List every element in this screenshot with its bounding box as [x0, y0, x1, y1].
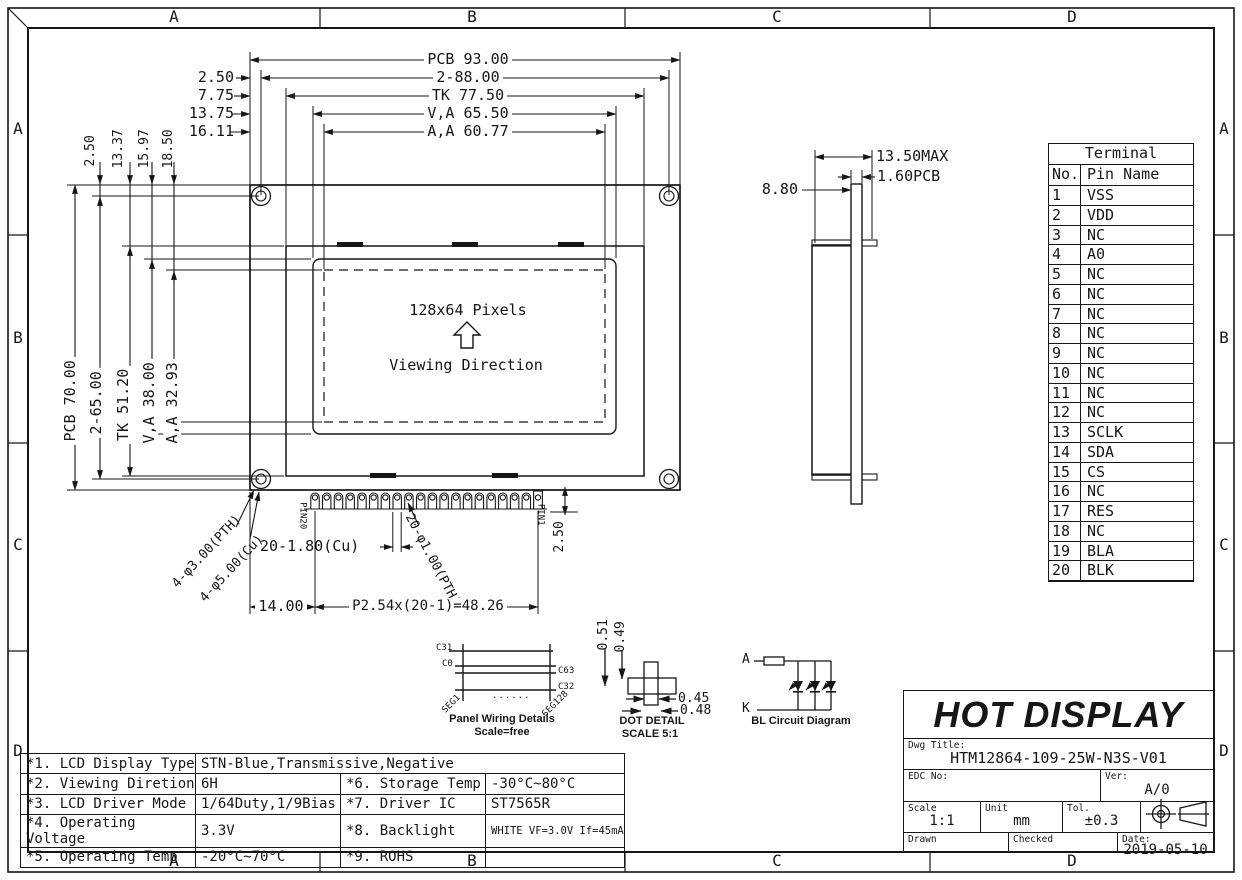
unit-value: mm	[981, 813, 1062, 829]
terminal-pin-number: 17	[1049, 502, 1081, 521]
bl-cathode-label: K	[742, 702, 750, 716]
dim-pcb-thickness: 1.60PCB	[877, 169, 940, 185]
spec-row-4: *4. Operating Voltage 3.3V *8. Backlight…	[21, 815, 624, 848]
zone-left-b: B	[8, 330, 28, 347]
dim-pin-pitch: P2.54x(20-1)=48.26	[330, 599, 526, 614]
drawn-cell: Drawn	[904, 833, 1009, 851]
spec-label: *3. LCD Driver Mode	[21, 795, 196, 814]
company-banner: HOT DISPLAY	[904, 691, 1213, 739]
terminal-pin-number: 19	[1049, 542, 1081, 561]
dim-pcb-width: PCB 93.00	[398, 52, 538, 68]
terminal-pin-number: 16	[1049, 482, 1081, 501]
dim-pin-offset: 14.00	[246, 599, 316, 615]
dim-depth: 8.80	[752, 182, 798, 198]
zone-left-a: A	[8, 121, 28, 138]
zone-top-b: B	[452, 9, 492, 26]
spec-value: 1/64Duty,1/9Bias	[196, 795, 341, 814]
spec-value: STN-Blue,Transmissive,Negative	[196, 754, 624, 773]
terminal-pin-number: 4	[1049, 245, 1081, 264]
terminal-pin-number: 20	[1049, 561, 1081, 580]
viewing-direction-arrow-icon	[454, 322, 480, 348]
terminal-pin-name: NC	[1081, 482, 1193, 501]
terminal-col-no: No.	[1049, 165, 1081, 185]
dot-detail-dim-049: 0.49	[614, 597, 628, 677]
terminal-row: 7 NC	[1049, 305, 1193, 325]
terminal-pin-name: VSS	[1081, 186, 1193, 205]
terminal-row: 19 BLA	[1049, 542, 1193, 562]
terminal-table-title: Terminal	[1049, 144, 1193, 165]
terminal-pin-number: 1	[1049, 186, 1081, 205]
terminal-pin-number: 11	[1049, 384, 1081, 403]
pin1-label: PIN1	[535, 500, 544, 530]
terminal-pin-number: 7	[1049, 305, 1081, 324]
edc-ver-row: EDC No: Ver: A/0	[904, 770, 1213, 802]
terminal-pin-number: 13	[1049, 423, 1081, 442]
panel-wiring-c0-label: C0	[442, 660, 453, 669]
spec-row-5: *5. Operating Temp -20°C~70°C *9. ROHS	[21, 848, 624, 867]
terminal-row: 3 NC	[1049, 226, 1193, 246]
terminal-pin-name: RES	[1081, 502, 1193, 521]
screen-resolution-label: 128x64 Pixels	[388, 303, 548, 319]
zone-top-a: A	[154, 9, 194, 26]
scale-value: 1:1	[904, 813, 980, 829]
terminal-pin-name: NC	[1081, 403, 1193, 422]
terminal-pin-name: NC	[1081, 364, 1193, 383]
pin20-label: PIN20	[297, 498, 306, 534]
scale-cell: Scale 1:1	[904, 802, 981, 832]
dim-vert-offset-4: 18.50	[162, 109, 176, 189]
spec-row-2: *2. Viewing Diretion 6H *6. Storage Temp…	[21, 774, 624, 794]
terminal-pin-number: 18	[1049, 522, 1081, 541]
terminal-row: 10 NC	[1049, 364, 1193, 384]
dimension-lines	[75, 60, 875, 607]
version-value: A/0	[1101, 782, 1213, 798]
spec-label: *6. Storage Temp	[341, 774, 486, 793]
spec-label: *1. LCD Display Type	[21, 754, 196, 773]
terminal-row: 4 A0	[1049, 245, 1193, 265]
dim-tk-width: TK 77.50	[398, 88, 538, 104]
terminal-pin-name: NC	[1081, 226, 1193, 245]
terminal-row: 1 VSS	[1049, 186, 1193, 206]
dim-hole-span-v: 2-65.00	[89, 343, 105, 463]
dot-detail-dim-051: 0.51	[597, 595, 611, 675]
version-cell: Ver: A/0	[1101, 770, 1213, 801]
zone-right-b: B	[1214, 330, 1234, 347]
dot-detail-caption: DOT DETAIL	[602, 716, 702, 728]
terminal-pin-name: SDA	[1081, 443, 1193, 462]
zone-top-c: C	[757, 9, 797, 26]
terminal-pin-name: NC	[1081, 265, 1193, 284]
dim-tk-height: TK 51.20	[116, 345, 132, 465]
panel-wiring-c31-label: C31	[436, 644, 452, 653]
panel-wiring-dots: ......	[492, 692, 531, 701]
terminal-pin-number: 3	[1049, 226, 1081, 245]
terminal-row: 17 RES	[1049, 502, 1193, 522]
dwg-title-value: HTM12864-109-25W-N3S-V01	[904, 749, 1213, 767]
spec-label: *7. Driver IC	[341, 795, 486, 814]
unit-cell: Unit mm	[981, 802, 1063, 832]
bl-anode-label: A	[742, 653, 750, 667]
spec-label: *2. Viewing Diretion	[21, 774, 196, 793]
terminal-pin-name: NC	[1081, 344, 1193, 363]
terminal-row: 12 NC	[1049, 403, 1193, 423]
terminal-pin-name: NC	[1081, 305, 1193, 324]
terminal-row: 20 BLK	[1049, 561, 1193, 581]
dim-vert-offset-3: 15.97	[138, 109, 152, 189]
terminal-pin-number: 14	[1049, 443, 1081, 462]
dim-pad-drop: 2.50	[553, 497, 567, 577]
spec-value: -30°C~80°C	[486, 774, 624, 793]
zone-bottom-d: D	[1052, 853, 1092, 870]
terminal-pin-name: VDD	[1081, 206, 1193, 225]
spec-table: *1. LCD Display Type STN-Blue,Transmissi…	[20, 753, 625, 868]
dim-va-height: V,A 38.00	[142, 343, 158, 463]
terminal-pin-number: 12	[1049, 403, 1081, 422]
panel-wiring-c63-label: C63	[558, 667, 574, 676]
engineering-drawing-sheet: A B C D A B C D A B C D A B C D PCB 93.0…	[0, 0, 1242, 880]
spec-label: *4. Operating Voltage	[21, 815, 196, 847]
terminal-pin-name: SCLK	[1081, 423, 1193, 442]
terminal-row: 2 VDD	[1049, 206, 1193, 226]
drawn-label: Drawn	[908, 834, 937, 845]
terminal-pin-name: CS	[1081, 463, 1193, 482]
side-view	[812, 184, 877, 504]
terminal-pin-number: 5	[1049, 265, 1081, 284]
terminal-pin-name: BLK	[1081, 561, 1193, 580]
terminal-pin-number: 15	[1049, 463, 1081, 482]
zone-right-c: C	[1214, 537, 1234, 554]
terminal-row: 11 NC	[1049, 384, 1193, 404]
terminal-row: 13 SCLK	[1049, 423, 1193, 443]
terminal-pin-name: NC	[1081, 384, 1193, 403]
connector-pads	[304, 491, 547, 509]
dim-vert-offset-2: 13.37	[112, 109, 126, 189]
spec-value	[486, 848, 624, 867]
company-name: HOT DISPLAY	[933, 694, 1183, 736]
spec-row-1: *1. LCD Display Type STN-Blue,Transmissi…	[21, 754, 624, 774]
checked-label: Checked	[1013, 834, 1053, 845]
terminal-pin-name: A0	[1081, 245, 1193, 264]
checked-cell: Checked	[1009, 833, 1118, 851]
zone-top-d: D	[1052, 9, 1092, 26]
dwg-title-row: Dwg Title: HTM12864-109-25W-N3S-V01	[904, 739, 1213, 770]
dim-thickness-max: 13.50MAX	[876, 149, 948, 165]
dim-offset-2: 7.75	[156, 88, 234, 104]
dim-pad-width: 20-1.80(Cu)	[260, 539, 359, 555]
terminal-pin-number: 9	[1049, 344, 1081, 363]
dim-va-width: V,A 65.50	[398, 106, 538, 122]
terminal-row: 16 NC	[1049, 482, 1193, 502]
terminal-pin-name: BLA	[1081, 542, 1193, 561]
panel-wiring-caption: Panel Wiring Details	[432, 714, 572, 726]
terminal-table: Terminal No. Pin Name 1 VSS 2 VDD 3 NC 4…	[1048, 143, 1194, 582]
date-cell: Date: 2019-05-10	[1118, 833, 1213, 851]
terminal-row: 15 CS	[1049, 463, 1193, 483]
spec-value: -20°C~70°C	[196, 848, 341, 867]
spec-value: 3.3V	[196, 815, 341, 847]
spec-row-3: *3. LCD Driver Mode 1/64Duty,1/9Bias *7.…	[21, 795, 624, 815]
dim-offset-1: 2.50	[156, 70, 234, 86]
terminal-pin-name: NC	[1081, 324, 1193, 343]
terminal-row: 18 NC	[1049, 522, 1193, 542]
dim-hole-span-h: 2-88.00	[398, 70, 538, 86]
edc-no-cell: EDC No:	[904, 770, 1101, 801]
terminal-table-header: No. Pin Name	[1049, 165, 1193, 186]
terminal-pin-number: 8	[1049, 324, 1081, 343]
date-value: 2019-05-10	[1118, 842, 1213, 858]
terminal-col-pin-name: Pin Name	[1081, 165, 1193, 185]
terminal-pin-name: NC	[1081, 285, 1193, 304]
terminal-pin-number: 10	[1049, 364, 1081, 383]
terminal-pin-name: NC	[1081, 522, 1193, 541]
dim-vert-offset-1: 2.50	[84, 111, 98, 191]
terminal-pin-number: 2	[1049, 206, 1081, 225]
terminal-pin-number: 6	[1049, 285, 1081, 304]
terminal-row: 9 NC	[1049, 344, 1193, 364]
edc-no-label: EDC No:	[908, 771, 948, 782]
zone-bottom-c: C	[757, 853, 797, 870]
dim-pcb-height: PCB 70.00	[63, 341, 79, 461]
spec-value: ST7565R	[486, 795, 624, 814]
dim-aa-height: A,A 32.93	[165, 343, 181, 463]
terminal-row: 14 SDA	[1049, 443, 1193, 463]
spec-label: *9. ROHS	[341, 848, 486, 867]
tolerance-value: ±0.3	[1063, 813, 1140, 829]
version-label: Ver:	[1105, 771, 1128, 782]
bl-circuit-caption: BL Circuit Diagram	[731, 716, 871, 728]
bl-circuit-sketch	[754, 657, 836, 710]
zone-right-a: A	[1214, 121, 1234, 138]
zone-left-c: C	[8, 537, 28, 554]
terminal-row: 5 NC	[1049, 265, 1193, 285]
spec-label: *5. Operating Temp	[21, 848, 196, 867]
spec-value: 6H	[196, 774, 341, 793]
viewing-direction-label: Viewing Direction	[376, 358, 556, 374]
dim-aa-width: A,A 60.77	[398, 124, 538, 140]
spec-label: *8. Backlight	[341, 815, 486, 847]
panel-wiring-scale: Scale=free	[432, 727, 572, 739]
scale-unit-tol-row: Scale 1:1 Unit mm Tol. ±0.3	[904, 802, 1213, 833]
terminal-row: 6 NC	[1049, 285, 1193, 305]
tolerance-cell: Tol. ±0.3	[1063, 802, 1141, 832]
terminal-row: 8 NC	[1049, 324, 1193, 344]
drawn-checked-date-row: Drawn Checked Date: 2019-05-10	[904, 833, 1213, 851]
zone-right-d: D	[1214, 743, 1234, 760]
projection-symbol-cell	[1141, 802, 1213, 832]
title-block: HOT DISPLAY Dwg Title: HTM12864-109-25W-…	[903, 690, 1214, 852]
spec-value: WHITE VF=3.0V If=45mA	[486, 815, 624, 847]
dot-detail-scale: SCALE 5:1	[600, 729, 700, 741]
